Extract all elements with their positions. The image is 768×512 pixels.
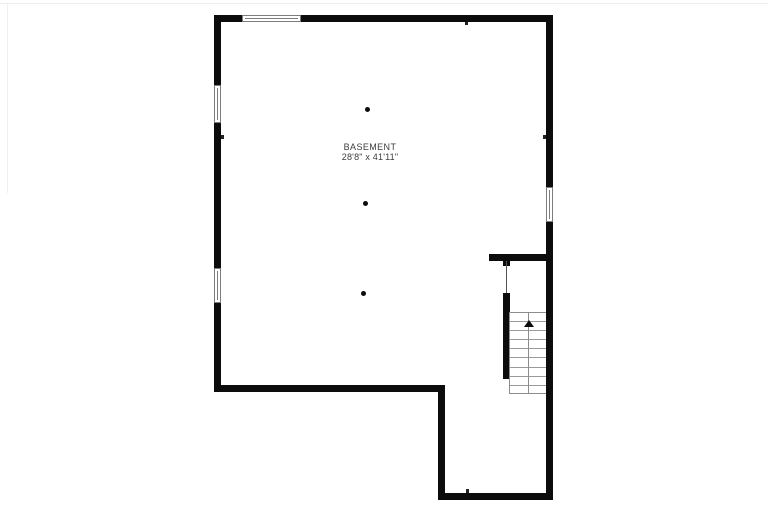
stair-up-arrow-icon xyxy=(524,320,534,327)
room-label-block: BASEMENT 28'8" x 41'11" xyxy=(300,142,440,162)
wall-tick-mark xyxy=(465,22,468,25)
stair-opening-line xyxy=(506,261,507,294)
wall-tick-mark xyxy=(543,135,546,139)
wall-extension-left xyxy=(438,385,445,500)
wall-top-right-segment xyxy=(301,15,553,22)
wall-tick-mark xyxy=(466,489,469,493)
window-pane-line xyxy=(549,190,550,219)
room-dimensions-label: 28'8" x 41'11" xyxy=(300,152,440,162)
window-right-wall xyxy=(546,187,553,222)
wall-bottom-main xyxy=(214,385,445,392)
support-column xyxy=(361,291,366,296)
photo-frame-top-line xyxy=(0,3,768,4)
window-left-wall-upper xyxy=(214,85,221,123)
wall-left-segment-3 xyxy=(214,303,221,392)
window-pane-line xyxy=(217,88,218,120)
wall-tick-mark xyxy=(221,135,224,139)
photo-frame-left-line xyxy=(7,3,8,193)
window-left-wall-lower xyxy=(214,268,221,303)
window-pane-line xyxy=(217,271,218,300)
wall-right-segment-1 xyxy=(546,15,553,187)
wall-stair-enclosure-top xyxy=(489,254,553,261)
wall-left-segment-2 xyxy=(214,123,221,268)
wall-extension-bottom xyxy=(438,493,553,500)
window-top-wall xyxy=(242,15,301,22)
wall-left-segment-1 xyxy=(214,15,221,85)
support-column xyxy=(363,201,368,206)
staircase xyxy=(509,312,546,394)
floor-plan-image: BASEMENT 28'8" x 41'11" xyxy=(0,0,768,512)
window-pane-line xyxy=(245,18,298,19)
support-column xyxy=(365,107,370,112)
wall-right-segment-2 xyxy=(546,222,553,500)
room-name-label: BASEMENT xyxy=(300,142,440,152)
